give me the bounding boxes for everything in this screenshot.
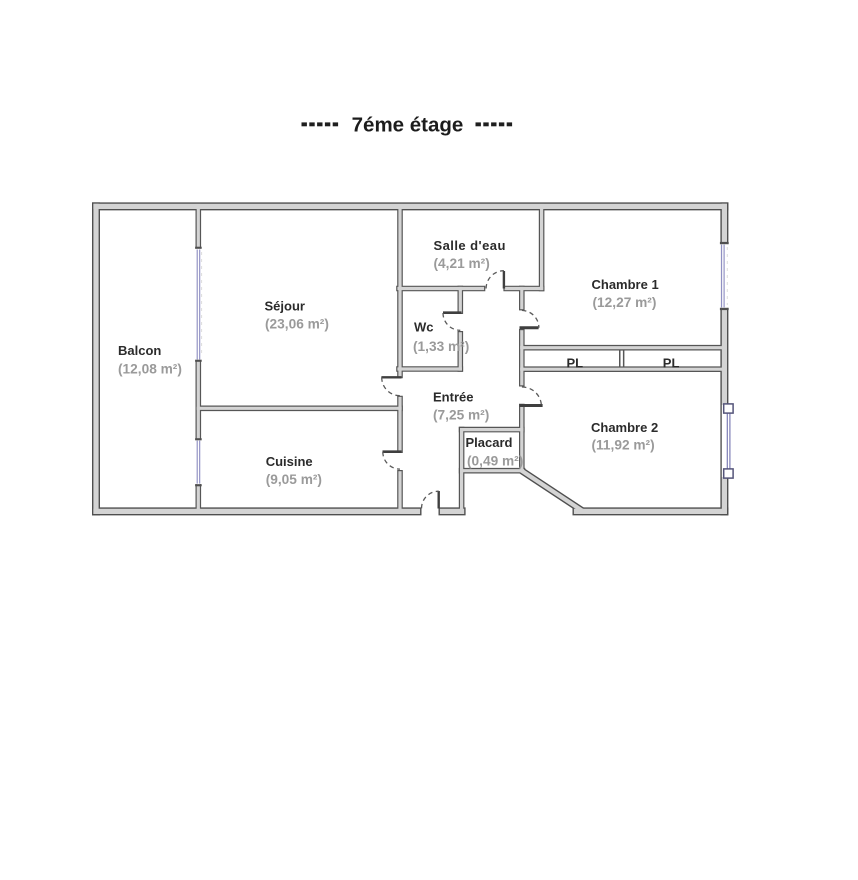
svg-text:PL: PL: [567, 356, 584, 371]
svg-text:(9,05 m²): (9,05 m²): [266, 472, 322, 487]
svg-text:Salle d'eau: Salle d'eau: [434, 238, 506, 253]
svg-text:Entrée: Entrée: [433, 390, 473, 405]
svg-text:(0,49 m²): (0,49 m²): [467, 454, 523, 469]
svg-text:(11,92 m²): (11,92 m²): [592, 438, 655, 453]
svg-text:Chambre 1: Chambre 1: [592, 277, 659, 292]
svg-text:Wc: Wc: [414, 320, 434, 335]
svg-text:(4,21 m²): (4,21 m²): [434, 256, 490, 271]
svg-text:Cuisine: Cuisine: [266, 454, 313, 469]
svg-text:(7,25 m²): (7,25 m²): [433, 408, 489, 423]
svg-text:7éme étage: 7éme étage: [352, 114, 464, 137]
svg-text:(23,06 m²): (23,06 m²): [265, 317, 329, 332]
svg-text:PL: PL: [663, 356, 680, 371]
svg-text:Chambre 2: Chambre 2: [591, 420, 658, 435]
svg-text:Placard: Placard: [466, 435, 513, 450]
svg-text:(1,33 m²): (1,33 m²): [413, 339, 469, 354]
svg-text:(12,27 m²): (12,27 m²): [593, 295, 657, 310]
svg-text:Séjour: Séjour: [265, 299, 305, 314]
svg-text:Balcon: Balcon: [118, 343, 161, 358]
svg-text:(12,08 m²): (12,08 m²): [118, 362, 182, 377]
